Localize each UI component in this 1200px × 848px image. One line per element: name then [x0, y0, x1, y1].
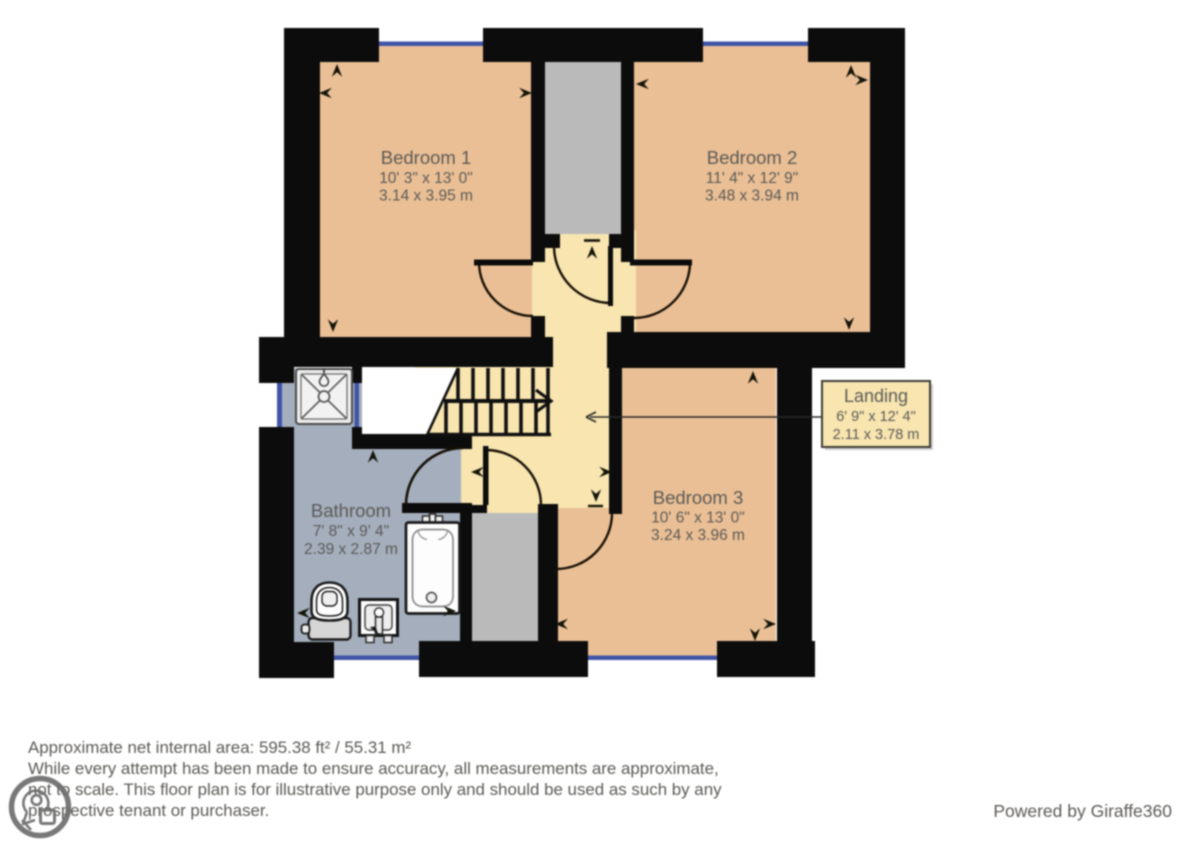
svg-text:Landing: Landing	[844, 386, 908, 406]
svg-text:Bedroom 3: Bedroom 3	[653, 487, 744, 508]
svg-text:11' 4" x 12' 9": 11' 4" x 12' 9"	[706, 170, 798, 187]
svg-text:10' 3" x 13' 0": 10' 3" x 13' 0"	[379, 170, 473, 187]
svg-text:3.24 x 3.96 m: 3.24 x 3.96 m	[651, 527, 745, 544]
svg-text:7' 8" x 9' 4": 7' 8" x 9' 4"	[313, 523, 389, 540]
svg-text:3.48 x 3.94 m: 3.48 x 3.94 m	[705, 188, 799, 205]
svg-text:6' 9" x 12' 4": 6' 9" x 12' 4"	[836, 409, 916, 425]
svg-text:3.14 x 3.95 m: 3.14 x 3.95 m	[379, 188, 473, 205]
svg-text:Powered by Giraffe360: Powered by Giraffe360	[993, 801, 1172, 821]
svg-text:Bedroom 2: Bedroom 2	[707, 147, 798, 168]
svg-text:2.11 x 3.78 m: 2.11 x 3.78 m	[833, 427, 920, 443]
svg-text:2.39 x 2.87 m: 2.39 x 2.87 m	[304, 541, 398, 558]
svg-text:Approximate net internal area:: Approximate net internal area: 595.38 ft…	[28, 738, 411, 757]
svg-text:Bathroom: Bathroom	[311, 500, 391, 521]
svg-text:10' 6" x 13' 0": 10' 6" x 13' 0"	[651, 510, 745, 527]
svg-text:Bedroom 1: Bedroom 1	[381, 147, 472, 168]
svg-text:While every attempt has been m: While every attempt has been made to ens…	[28, 759, 719, 778]
svg-text:not to scale. This floor plan: not to scale. This floor plan is for ill…	[28, 780, 722, 799]
